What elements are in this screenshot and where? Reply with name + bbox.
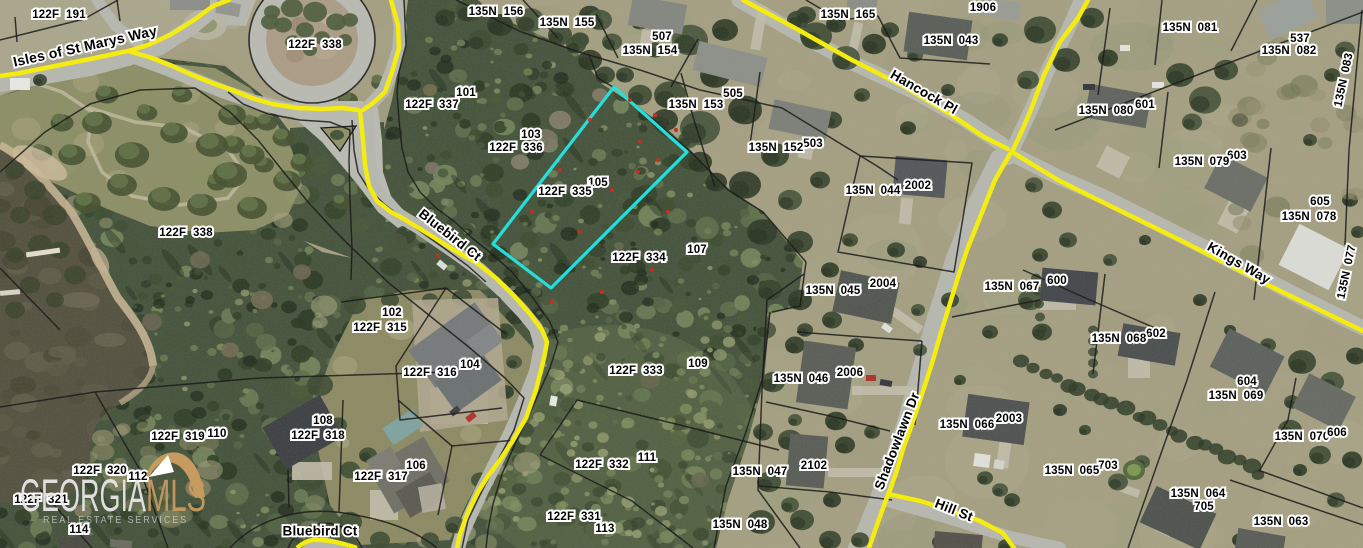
svg-text:113: 113 <box>595 523 614 535</box>
svg-text:601: 601 <box>1135 99 1155 111</box>
svg-text:135N 045: 135N 045 <box>806 285 861 297</box>
svg-text:122F 331: 122F 331 <box>547 511 601 523</box>
svg-text:REAL ESTATE SERVICES: REAL ESTATE SERVICES <box>43 514 188 526</box>
svg-text:135N 063: 135N 063 <box>1254 516 1309 528</box>
svg-text:135N 064: 135N 064 <box>1171 488 1226 500</box>
svg-text:505: 505 <box>723 88 743 100</box>
svg-text:503: 503 <box>803 138 823 150</box>
svg-text:135N 079: 135N 079 <box>1175 156 1230 168</box>
svg-text:103: 103 <box>521 129 541 141</box>
svg-text:135N 067: 135N 067 <box>985 281 1040 293</box>
svg-text:108: 108 <box>313 415 333 427</box>
svg-text:602: 602 <box>1146 328 1166 340</box>
svg-text:2003: 2003 <box>996 413 1022 425</box>
svg-text:135N 068: 135N 068 <box>1092 333 1147 345</box>
svg-text:122F 317: 122F 317 <box>354 471 408 483</box>
svg-text:122F 334: 122F 334 <box>612 252 666 264</box>
svg-text:135N 069: 135N 069 <box>1209 390 1264 402</box>
svg-text:135N 044: 135N 044 <box>846 185 901 197</box>
svg-text:122F 335: 122F 335 <box>538 186 592 198</box>
svg-text:2002: 2002 <box>905 180 931 192</box>
svg-text:135N 047: 135N 047 <box>733 466 788 478</box>
svg-text:2006: 2006 <box>837 367 863 379</box>
svg-text:2102: 2102 <box>801 460 827 472</box>
svg-text:122F 333: 122F 333 <box>609 365 663 377</box>
svg-text:135N 081: 135N 081 <box>1163 22 1218 34</box>
svg-text:135N 082: 135N 082 <box>1262 45 1317 57</box>
svg-text:101: 101 <box>456 87 476 99</box>
svg-text:135N 065: 135N 065 <box>1045 465 1100 477</box>
svg-text:135N 043: 135N 043 <box>924 35 979 47</box>
svg-text:507: 507 <box>652 31 672 43</box>
svg-text:111: 111 <box>638 452 657 464</box>
svg-text:122F 316: 122F 316 <box>403 367 457 379</box>
svg-text:600: 600 <box>1047 275 1067 287</box>
svg-text:135N 048: 135N 048 <box>713 519 768 531</box>
svg-text:135N 066: 135N 066 <box>940 419 995 431</box>
svg-text:135N 154: 135N 154 <box>623 45 678 57</box>
svg-text:603: 603 <box>1227 150 1247 162</box>
svg-text:135N 153: 135N 153 <box>669 99 724 111</box>
svg-text:110: 110 <box>207 428 226 440</box>
svg-text:122F 332: 122F 332 <box>575 459 629 471</box>
svg-text:135N 070: 135N 070 <box>1275 431 1330 443</box>
svg-text:106: 106 <box>406 460 426 472</box>
svg-text:109: 109 <box>688 358 708 370</box>
svg-text:135N 165: 135N 165 <box>821 9 876 21</box>
svg-text:122F 337: 122F 337 <box>405 99 459 111</box>
svg-text:135N 078: 135N 078 <box>1282 211 1337 223</box>
svg-text:606: 606 <box>1327 427 1347 439</box>
svg-text:537: 537 <box>1290 33 1310 45</box>
svg-text:605: 605 <box>1310 196 1330 208</box>
svg-text:122F 318: 122F 318 <box>291 430 345 442</box>
svg-text:107: 107 <box>687 244 707 256</box>
svg-text:705: 705 <box>1194 501 1214 513</box>
svg-text:104: 104 <box>460 359 480 371</box>
svg-text:135N 152: 135N 152 <box>749 142 804 154</box>
svg-text:135N 046: 135N 046 <box>774 373 829 385</box>
svg-text:122F 191: 122F 191 <box>32 9 86 21</box>
svg-text:102: 102 <box>382 307 402 319</box>
svg-text:Bluebird Ct: Bluebird Ct <box>283 524 358 539</box>
svg-text:122F 319: 122F 319 <box>151 431 205 443</box>
svg-text:135N 156: 135N 156 <box>469 6 524 18</box>
svg-text:2004: 2004 <box>870 278 897 290</box>
svg-text:135N 155: 135N 155 <box>540 17 595 29</box>
svg-text:122F 336: 122F 336 <box>489 142 543 154</box>
svg-text:122F 315: 122F 315 <box>353 322 407 334</box>
svg-text:122F 338: 122F 338 <box>288 39 342 51</box>
svg-text:604: 604 <box>1237 376 1257 388</box>
svg-text:135N 080: 135N 080 <box>1079 105 1134 117</box>
svg-text:703: 703 <box>1098 460 1118 472</box>
svg-text:1906: 1906 <box>970 2 996 14</box>
svg-text:122F 338: 122F 338 <box>159 227 213 239</box>
